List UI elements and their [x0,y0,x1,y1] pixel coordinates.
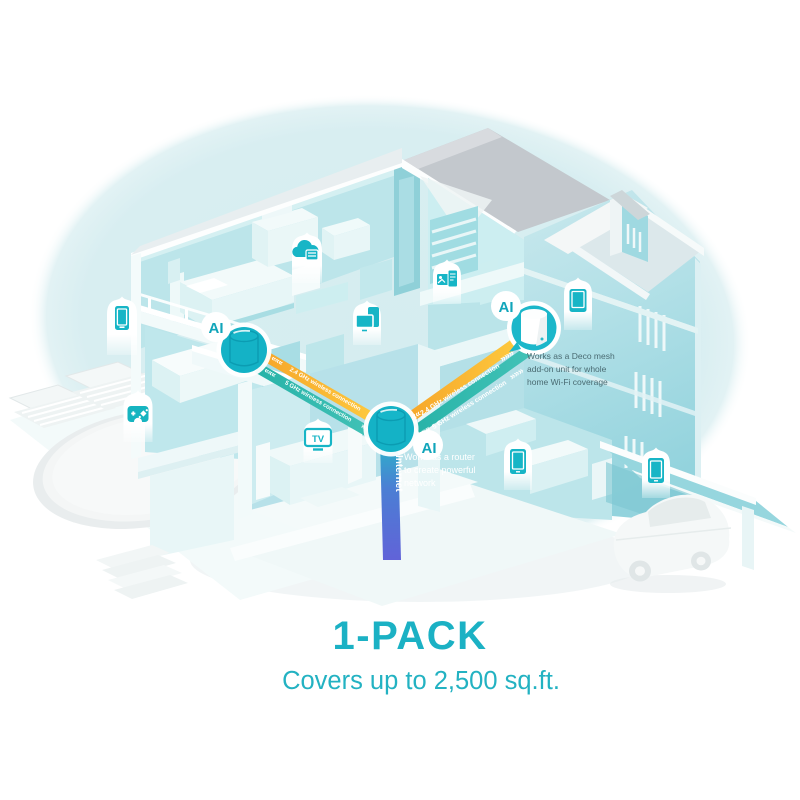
svg-text:Internet: Internet [393,455,404,492]
svg-text:Works as a Deco mesh: Works as a Deco mesh [527,351,615,361]
svg-text:home Wi-Fi coverage: home Wi-Fi coverage [527,377,608,387]
svg-text:network: network [404,478,436,488]
svg-text:AI: AI [209,320,224,337]
svg-text:TV: TV [312,434,325,445]
svg-text:Works as a router: Works as a router [404,452,475,462]
svg-text:add-on unit for whole: add-on unit for whole [527,364,607,374]
svg-text:AI: AI [499,299,514,316]
svg-text:to create powerful: to create powerful [404,465,476,475]
